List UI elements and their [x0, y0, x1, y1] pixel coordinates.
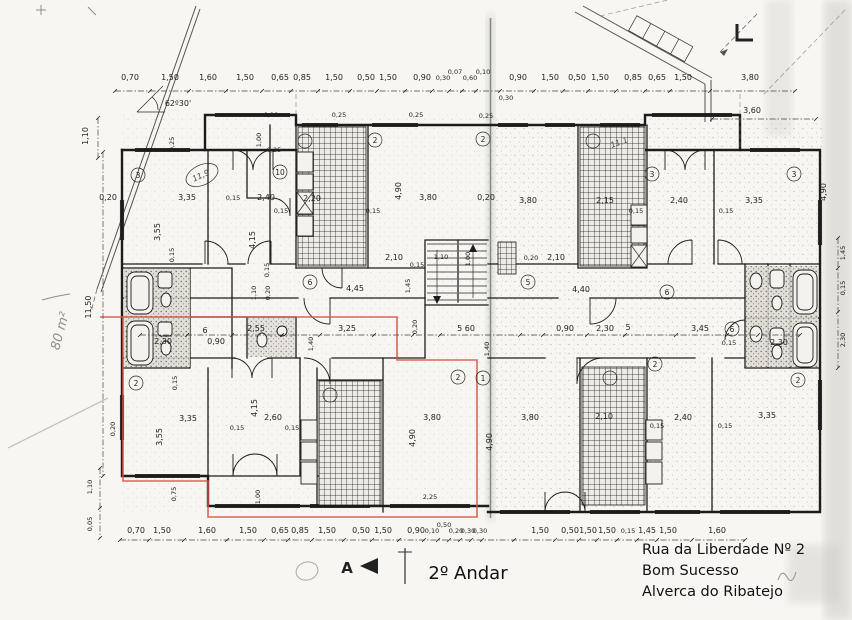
section-arrow-icon [360, 558, 378, 574]
dim-label: 2,15 [596, 196, 614, 205]
dim-label: 2,25 [423, 493, 437, 501]
dim-label: 0,15 [718, 422, 732, 430]
dim-label: 0,15 [722, 339, 736, 347]
dim-label: 0,20 [477, 193, 495, 202]
dim-label: 3,35 [745, 196, 763, 205]
dim-label: 0,15 [621, 527, 635, 535]
room-tag: 2 [456, 373, 461, 382]
dim-label: 4,15 [250, 399, 259, 417]
dim-label: 1,50 [236, 73, 254, 82]
dim-label: 4,40 [572, 285, 590, 294]
dim-label: 2,40 [257, 193, 275, 202]
dim-label: 0,15 [410, 261, 424, 269]
dim-label: 0,50 [357, 73, 375, 82]
address-line-2: Bom Sucesso [642, 563, 739, 579]
titles: 2º Andar Rua da Liberdade Nº 2 Bom Suces… [294, 542, 805, 600]
dim-label: 1,50 [153, 526, 171, 535]
dim-label: 1,50 [318, 526, 336, 535]
dim-label: 0,15 [274, 207, 288, 215]
dim-label: 1,60 [198, 526, 216, 535]
dim-label: 0,15 [230, 424, 244, 432]
room-tag: 3 [650, 170, 655, 179]
dim-label: 1,45 [638, 526, 656, 535]
dim-label: 0,15 [285, 424, 299, 432]
dim-label: 2,10 [385, 253, 403, 262]
dim-label: 3,35 [758, 411, 776, 420]
dim-label: 0,25 [267, 146, 281, 154]
dim-label: 4,15 [248, 231, 257, 249]
floor-plan-drawing: 0,70 1,50 1,60 1,50 0,65 0,85 1,50 0,50 … [0, 0, 852, 620]
dim-label: 3,80 [741, 73, 759, 82]
dim-label: 3,80 [521, 413, 539, 422]
dim-label: 0,20 [524, 254, 538, 262]
dim-label: 0,50 [561, 526, 579, 535]
room-tag: 2 [653, 360, 658, 369]
dim-label: 4,45 [346, 284, 364, 293]
dim-label: 0,30 [499, 94, 513, 102]
dim-label: 1,50 [598, 526, 616, 535]
door-number: 5 [625, 323, 630, 332]
dim-label: 0,65 [271, 73, 289, 82]
dim-label: 0,25 [332, 111, 346, 119]
floor-title: 2º Andar [428, 563, 508, 584]
dim-label: 0,15 [719, 207, 733, 215]
room-tag: 6 [665, 288, 670, 297]
dim-label: 0,15 [263, 263, 271, 277]
dim-label: 2,10 [595, 412, 613, 421]
dim-label: 0,70 [127, 526, 145, 535]
room-tag: 2 [481, 135, 486, 144]
dim-label: 0,85 [624, 73, 642, 82]
dim-label: 5 60 [457, 324, 475, 333]
dim-label: 2,30 [770, 338, 788, 347]
dim-label: 1,50 [591, 73, 609, 82]
dim-label: 0,15 [650, 422, 664, 430]
room-tag: 2 [373, 136, 378, 145]
dim-label: 1,00 [464, 252, 472, 266]
dim-label: 1,50 [239, 526, 257, 535]
dim-label: 0,50 [352, 526, 370, 535]
kitchen-tiles-bottom-right [582, 367, 645, 505]
room-tag: 3 [136, 171, 141, 180]
room-tag: 1 [481, 374, 486, 383]
dim-label: 0,90 [556, 324, 574, 333]
dim-label: 0,20 [411, 320, 419, 334]
dim-label: 1,50 [379, 73, 397, 82]
angle-note: 62º30' [165, 99, 191, 108]
dim-label: 2,40 [670, 196, 688, 205]
dim-label: 0,90 [407, 526, 425, 535]
room-tag: 2 [796, 376, 801, 385]
dim-label: 0,65 [271, 526, 289, 535]
address-line-1: Rua da Liberdade Nº 2 [642, 542, 805, 558]
dim-label: 1,60 [708, 526, 726, 535]
dim-label: 1,40 [307, 337, 315, 351]
dim-label: 0,65 [648, 73, 666, 82]
dim-label: 0,20 [109, 422, 117, 436]
dim-label: 3,35 [179, 414, 197, 423]
dim-label: 0,85 [293, 73, 311, 82]
address-line-3: Alverca do Ribatejo [642, 584, 783, 600]
apartment-area-note: 80 m² [48, 311, 72, 352]
dim-label: 0,50 [568, 73, 586, 82]
dim-label: 3,25 [338, 324, 356, 333]
dim-label: 0,25 [168, 137, 176, 151]
pencil-circle-mark [294, 559, 320, 582]
dim-label: 2,55 [247, 324, 265, 333]
dim-label: 0,07 [448, 68, 462, 76]
dim-label: 2,20 [303, 194, 321, 203]
dim-label: 1,10 [86, 480, 94, 494]
dim-label: 0,85 [291, 526, 309, 535]
door-number: 6 [202, 326, 207, 335]
dim-label: 3,80 [519, 196, 537, 205]
dim-label: 0,20 [99, 193, 117, 202]
dim-label: 0,90 [413, 73, 431, 82]
dim-label: 1,40 [483, 342, 491, 356]
dim-label: 1,50 [531, 526, 549, 535]
duct-shaft [498, 242, 516, 274]
dim-label: 0,05 [86, 517, 94, 531]
dim-label: 1,50 [659, 526, 677, 535]
dim-label: 0,25 [479, 112, 493, 120]
dim-label: 1,00 [255, 133, 263, 147]
dim-label: 1,50 [161, 73, 179, 82]
room-tag: 2 [134, 379, 139, 388]
dim-label: 0,90 [207, 337, 225, 346]
dim-label: 0,15 [839, 281, 847, 295]
dim-label: 2,30 [596, 324, 614, 333]
dim-label: 1,00 [254, 490, 262, 504]
dim-label: 1,50 [374, 526, 392, 535]
dim-label: 0,20 [264, 286, 272, 300]
dim-label: 3,55 [155, 428, 164, 446]
dim-label: 3,45 [691, 324, 709, 333]
dim-label: 0,15 [171, 376, 179, 390]
dim-label: 0,30 [473, 527, 487, 535]
dim-label: 3,80 [419, 193, 437, 202]
dim-label: 0,15 [366, 207, 380, 215]
dim-label: 4,90 [485, 433, 494, 451]
room-tag: 3 [792, 170, 797, 179]
kitchen-tiles-bottom-left [319, 381, 381, 505]
dim-label: 11,50 [84, 296, 93, 319]
dim-label: 0,10 [264, 111, 278, 119]
dim-label: 0,25 [409, 111, 423, 119]
room-tag: 5 [526, 278, 531, 287]
dim-label: 2,30 [154, 337, 172, 346]
room-tag: 6 [308, 278, 313, 287]
dim-label: 4,90 [394, 182, 403, 200]
section-marker-label: A [341, 559, 353, 577]
scanned-floor-plan-sheet: 0,70 1,50 1,60 1,50 0,65 0,85 1,50 0,50 … [0, 0, 852, 620]
dim-label: 1,50 [541, 73, 559, 82]
dim-label: 0,75 [170, 487, 178, 501]
dim-label: 3,35 [178, 193, 196, 202]
room-tag: 6 [730, 325, 735, 334]
room-tag: 10 [275, 168, 285, 177]
dim-label: 0,15 [629, 207, 643, 215]
dim-label: 4,90 [408, 429, 417, 447]
dim-label: 2,40 [674, 413, 692, 422]
dim-label: 3,80 [423, 413, 441, 422]
dim-label: 1,10 [250, 286, 258, 300]
dim-label: 1,50 [674, 73, 692, 82]
dim-label: 1,45 [404, 279, 412, 293]
dim-label: 1,45 [839, 246, 847, 260]
dim-label: 1,10 [81, 127, 90, 145]
dim-label: 4,90 [819, 183, 828, 201]
dim-label: 3,55 [153, 223, 162, 241]
dim-label: 1,50 [579, 526, 597, 535]
dim-label: 0,15 [226, 194, 240, 202]
dim-label: 2,10 [547, 253, 565, 262]
dim-label: 2,30 [839, 333, 847, 347]
dim-label: 3,60 [743, 106, 761, 115]
dim-label: 1,10 [434, 253, 448, 261]
dim-label: 1,50 [325, 73, 343, 82]
dim-label: 0,90 [509, 73, 527, 82]
dim-label: 0,15 [168, 248, 176, 262]
dim-label: 0,70 [121, 73, 139, 82]
dim-label: 2,60 [264, 413, 282, 422]
dim-label: 0,10 [476, 68, 490, 76]
dim-label: 1,60 [199, 73, 217, 82]
